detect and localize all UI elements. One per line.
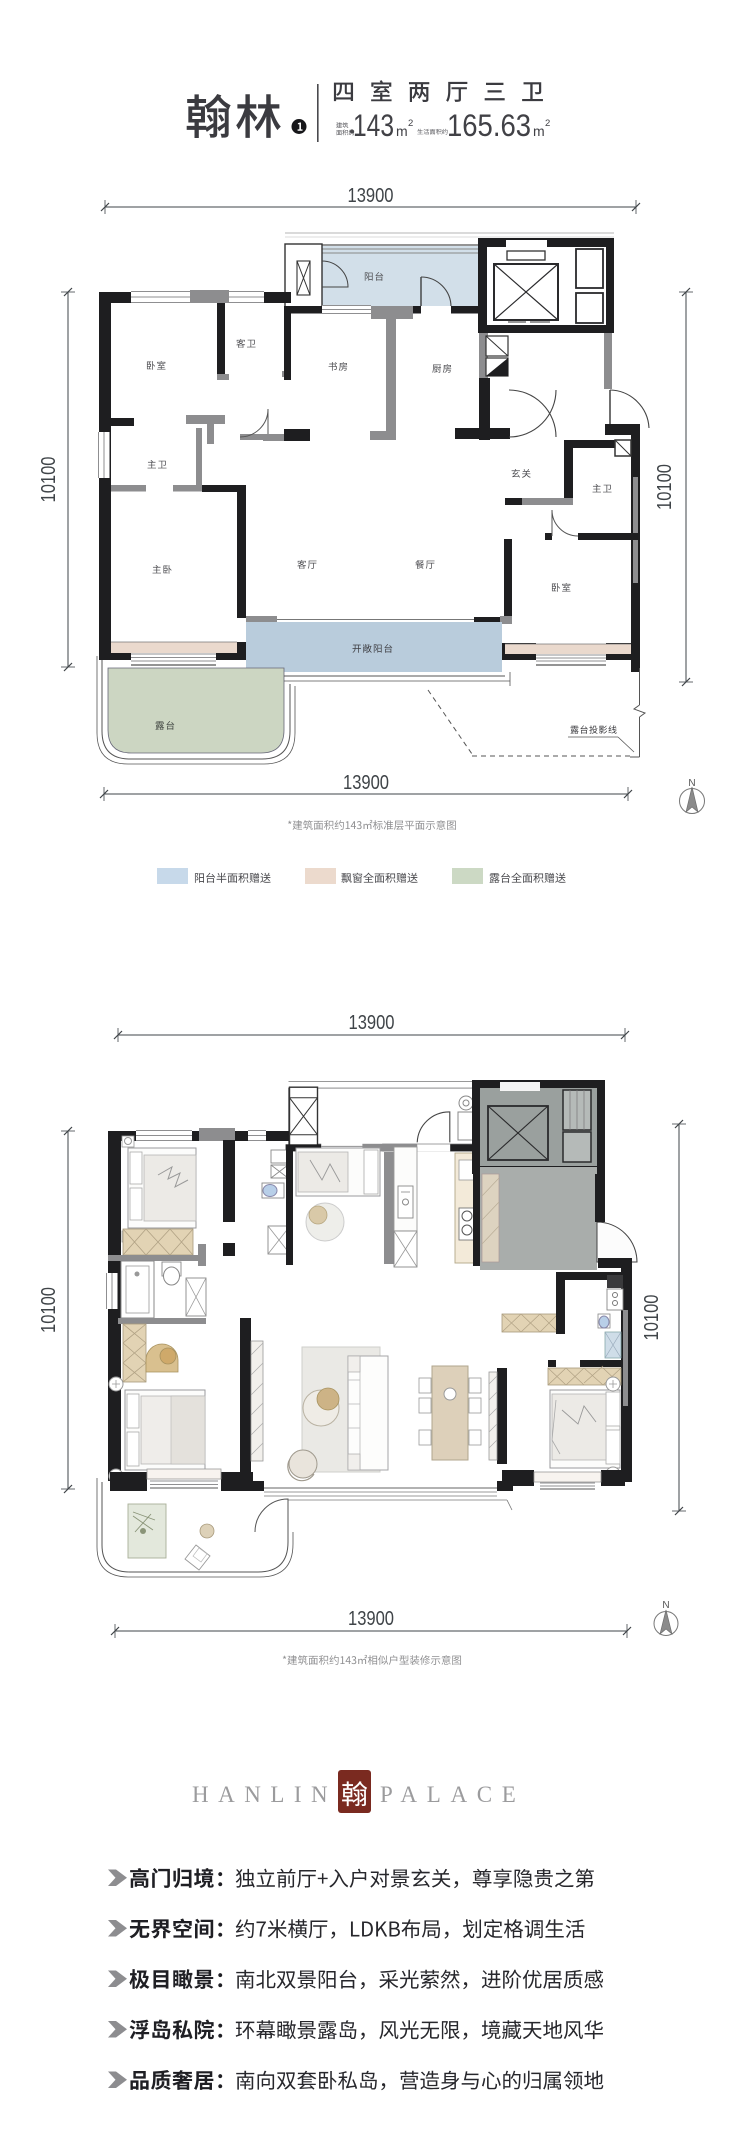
svg-text:10100: 10100 [38,1287,60,1333]
svg-text:143: 143 [353,107,394,143]
svg-text:PALACE: PALACE [380,1782,526,1807]
svg-text:2: 2 [545,118,550,129]
svg-text:165.63: 165.63 [447,107,531,143]
svg-text:13900: 13900 [348,1608,394,1630]
svg-text:2: 2 [408,118,413,129]
svg-text:13900: 13900 [349,1012,395,1034]
svg-text:10100: 10100 [641,1295,663,1341]
svg-text:13900: 13900 [348,185,394,207]
svg-text:m: m [533,123,545,139]
svg-text:m: m [396,123,408,139]
svg-text:13900: 13900 [343,772,389,794]
svg-text:10100: 10100 [654,464,676,510]
svg-text:N: N [662,1600,669,1611]
svg-text:HANLIN: HANLIN [192,1782,337,1807]
svg-text:10100: 10100 [38,457,60,503]
